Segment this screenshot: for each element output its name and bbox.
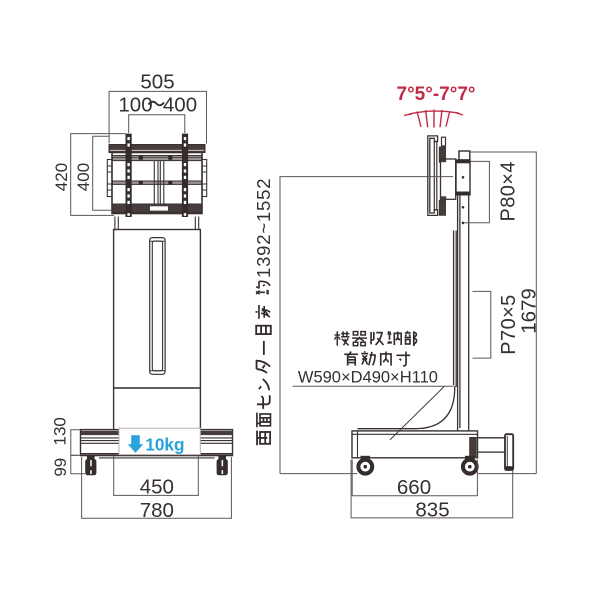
svg-text:450: 450 — [140, 476, 174, 499]
svg-text:130: 130 — [51, 417, 70, 445]
svg-text:P80×4: P80×4 — [498, 161, 520, 221]
svg-text:7°5°-7°7°: 7°5°-7°7° — [397, 84, 476, 105]
svg-text:W590×D490×H110: W590×D490×H110 — [298, 369, 438, 387]
svg-text:1679: 1679 — [518, 288, 541, 334]
svg-text:505: 505 — [140, 71, 174, 94]
svg-text:420: 420 — [52, 163, 71, 191]
svg-text:1392~1552: 1392~1552 — [253, 178, 274, 278]
svg-text:780: 780 — [140, 499, 174, 522]
svg-text:400: 400 — [74, 163, 93, 191]
svg-text:P70×5: P70×5 — [498, 294, 520, 354]
svg-text:835: 835 — [415, 499, 449, 522]
svg-text:99: 99 — [51, 458, 70, 477]
svg-text:100: 100 — [118, 93, 152, 116]
svg-text:10kg: 10kg — [145, 435, 184, 455]
svg-text:400: 400 — [163, 93, 197, 116]
svg-text:660: 660 — [397, 476, 431, 499]
